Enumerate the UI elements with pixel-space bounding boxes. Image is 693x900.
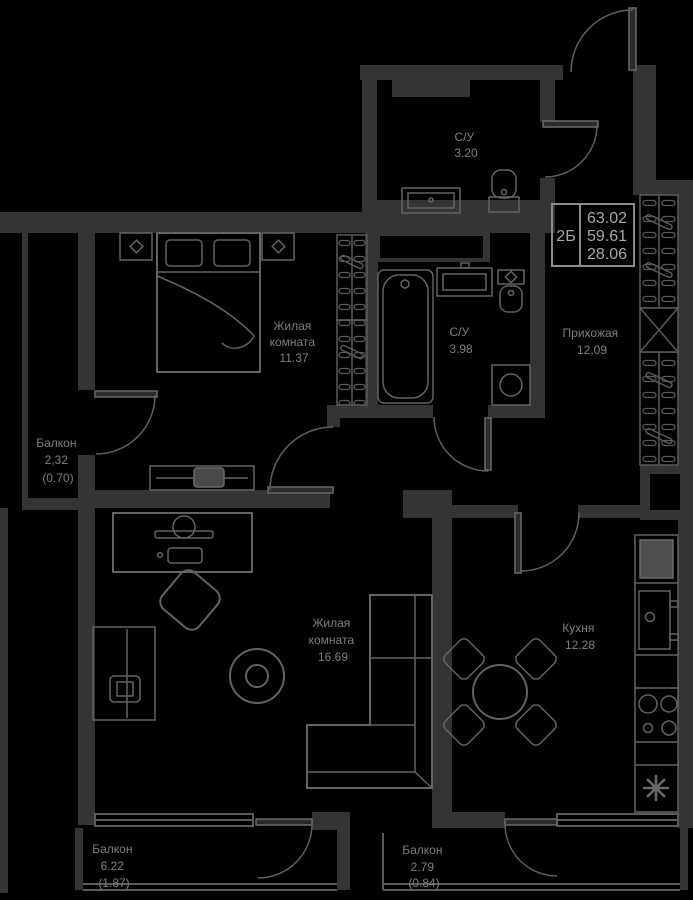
kitchen-door: [515, 513, 579, 573]
floor-plan: 2Б 63.02 59.61 28.06: [0, 0, 693, 900]
total-area: 63.02: [587, 210, 627, 227]
living-room-furniture: [93, 513, 432, 788]
entrance-door: [571, 8, 636, 72]
room-label-hallway: Прихожая 12,09: [563, 326, 622, 357]
bathroom-top-door: [543, 121, 598, 177]
bedroom-wardrobe-icon: [337, 235, 367, 405]
office-chair-icon: [156, 566, 224, 634]
tv-icon: [194, 468, 224, 487]
desk-icon: [113, 513, 252, 572]
vanity-sink-icon: [437, 263, 492, 296]
windows: [83, 814, 680, 890]
bedroom-door: [268, 427, 333, 493]
lamp-icon: [272, 240, 285, 253]
unit-type: 2Б: [556, 228, 575, 245]
pillow-icon: [214, 240, 250, 266]
room-label-bathroom-main: С/У 3.98: [449, 325, 473, 356]
stove-icon: [639, 695, 677, 735]
extra-area: 28.06: [587, 246, 627, 263]
room-label-kitchen: Кухня 12.28: [562, 621, 597, 652]
walls: [0, 65, 693, 893]
bathtub-icon: [378, 270, 433, 403]
info-box: 2Б 63.02 59.61 28.06: [552, 204, 634, 266]
kitchen-counter-icon: [635, 535, 678, 812]
bed-icon: [157, 233, 260, 372]
floor-lamp-icon: [230, 649, 284, 703]
tv-stand-icon: [150, 466, 254, 490]
dining-table-icon: [441, 636, 558, 747]
room-label-bedroom: Жилая комната 11.37: [270, 319, 319, 365]
easel-icon: [93, 627, 155, 720]
floor-plan-svg: 2Б 63.02 59.61 28.06: [0, 0, 693, 900]
fridge-icon: [640, 540, 673, 578]
room-label-balcony-bottom-left: Балкон 6.22 (1.87): [92, 842, 136, 890]
bedroom-balcony-door: [95, 391, 157, 454]
lamp-icon: [130, 240, 143, 253]
keyboard-icon: [168, 548, 202, 563]
bathroom-main-door: [434, 417, 491, 471]
pillow-icon: [166, 240, 202, 266]
kitchen-balcony-door: [505, 819, 557, 876]
boiler-icon: [643, 775, 669, 801]
toilet-icon: [498, 270, 524, 312]
kitchen-sink-icon: [639, 591, 678, 649]
monitor-icon: [173, 516, 195, 538]
room-label-bathroom-top: С/У 3.20: [454, 130, 478, 160]
nightstand-icon: [120, 233, 152, 260]
living-balcony-door: [256, 819, 312, 878]
shelf-unit-icon: [640, 308, 678, 352]
room-label-balcony-bottom-right: Балкон 2.79 (0.84): [402, 843, 446, 890]
bedroom-furniture: [120, 233, 367, 490]
kitchen-furniture: [441, 535, 678, 812]
room-label-balcony-left: Балкон 2,32 (0.70): [36, 436, 80, 485]
living-area: 59.61: [587, 228, 627, 245]
hallway-wardrobe-icon: [640, 195, 678, 465]
room-label-living-room: Жилая комната 16.69: [309, 616, 358, 664]
washing-machine-icon: [492, 365, 530, 405]
nightstand-icon: [262, 233, 294, 260]
